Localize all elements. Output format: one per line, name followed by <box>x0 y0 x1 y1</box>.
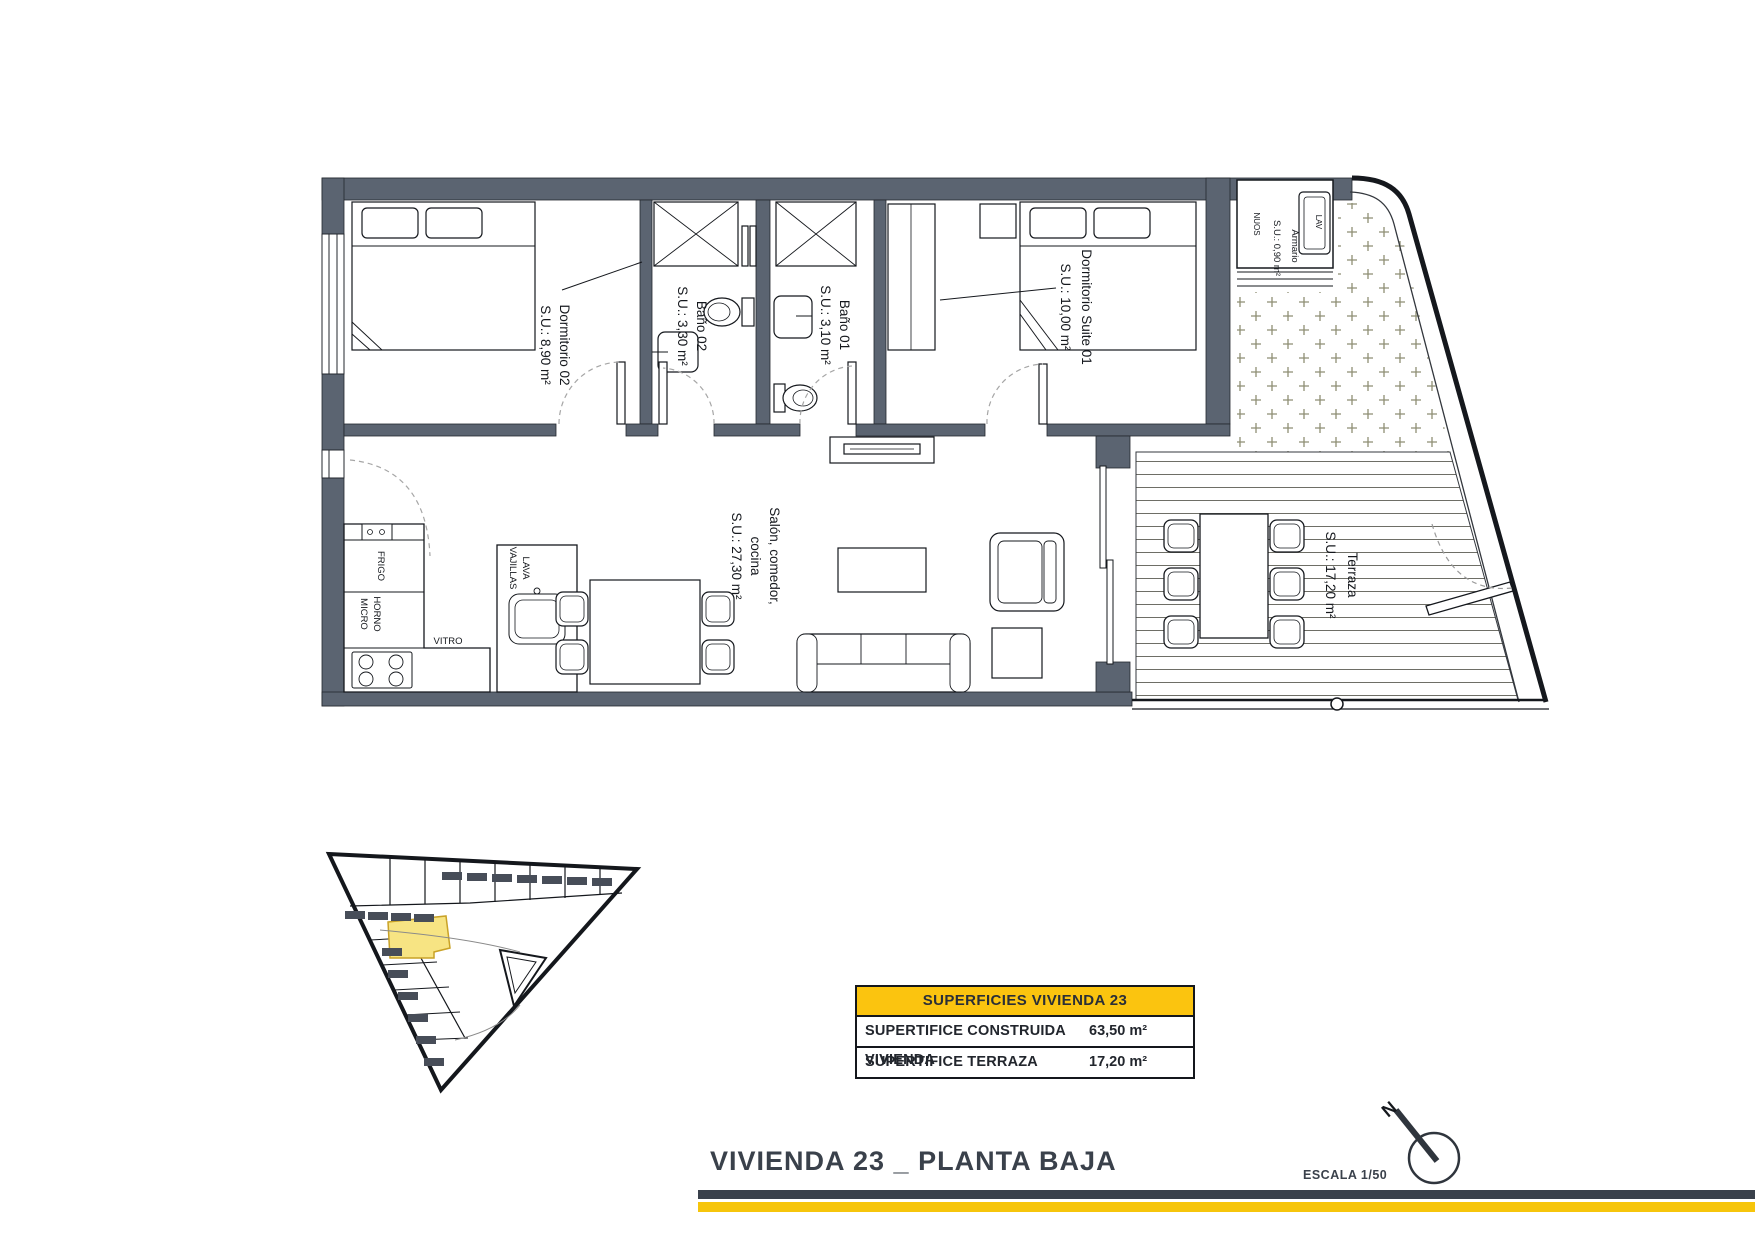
bano02-area: S.U.: 3,30 m² <box>675 286 690 366</box>
vitro-label: VITRO <box>433 636 462 647</box>
window-salon <box>322 450 344 478</box>
washer-label: LAV <box>1314 215 1323 230</box>
salon-name-line2: cocina <box>748 536 763 576</box>
micro-label: MICRO <box>358 598 369 630</box>
doors <box>350 362 1047 556</box>
frigo-label: FRIGO <box>375 551 386 581</box>
wardrobe <box>888 204 935 350</box>
pillow <box>426 208 482 238</box>
bano02-name: Baño 02 <box>694 301 709 351</box>
scale-label: ESCALA 1/50 <box>1303 1168 1387 1182</box>
label-leader <box>562 262 642 290</box>
armario-area-label: S.U.: 0,90 m² <box>1271 220 1282 276</box>
dormitorio02-area: S.U.: 8,90 m² <box>538 305 553 385</box>
north-label: N <box>1378 1097 1401 1121</box>
site-plan <box>329 854 637 1090</box>
vajillas-label: VAJILLAS <box>507 547 518 590</box>
side-table <box>992 628 1042 678</box>
armario-unit-label: NUOS <box>1252 212 1261 235</box>
row-value: 17,20 m² <box>1089 1048 1193 1077</box>
dining-set <box>556 580 734 684</box>
pillow <box>1094 208 1150 238</box>
horno-label: HORNO <box>371 596 382 631</box>
sink <box>774 296 812 338</box>
table-row: SUPERTIFICE CONSTRUIDA VIVIENDA 63,50 m² <box>857 1017 1193 1046</box>
terrace-drain <box>1331 698 1343 710</box>
bano01-area: S.U.: 3,10 m² <box>818 285 833 365</box>
terraza-area: S.U.: 17,20 m² <box>1323 531 1338 619</box>
title-bar-yellow <box>698 1202 1755 1212</box>
salon-area: S.U.: 27,30 m² <box>729 512 744 600</box>
suite01-name: Dormitorio Suite 01 <box>1079 249 1094 365</box>
pillow <box>362 208 418 238</box>
dormitorio02-name: Dormitorio 02 <box>557 304 572 385</box>
suite01-area: S.U.: 10,00 m² <box>1058 263 1073 351</box>
surface-summary-table: SUPERFICIES VIVIENDA 23 SUPERTIFICE CONS… <box>855 985 1195 1079</box>
row-label: SUPERTIFICE CONSTRUIDA VIVIENDA <box>857 1017 1089 1046</box>
terrace-table <box>1200 514 1268 638</box>
floor-plan-sheet: NUOS S.U.: 0,90 m² Armario LAV Dormitori… <box>0 0 1755 1249</box>
table-row: SUPERTIFICE TERRAZA 17,20 m² <box>857 1046 1193 1077</box>
terraza-name: Terraza <box>1345 552 1360 598</box>
title-bar-dark <box>698 1190 1755 1199</box>
toilet-tank <box>742 298 754 326</box>
row-value: 63,50 m² <box>1089 1017 1193 1046</box>
sofa <box>797 634 970 692</box>
table-header: SUPERFICIES VIVIENDA 23 <box>857 987 1193 1017</box>
electrical-box <box>362 524 392 540</box>
dormitorio02 <box>352 202 642 350</box>
row-label: SUPERTIFICE TERRAZA <box>857 1048 1089 1077</box>
lava-label: LAVA <box>520 557 531 581</box>
pillow <box>1030 208 1086 238</box>
north-arrow: N <box>1378 1097 1459 1183</box>
armario-room: NUOS S.U.: 0,90 m² Armario LAV <box>1237 180 1333 286</box>
terrace-dining-set <box>1164 514 1304 648</box>
dining-table <box>590 580 700 684</box>
armario-name-label: Armario <box>1289 229 1300 262</box>
bano01-name: Baño 01 <box>837 300 852 350</box>
sheet-title: VIVIENDA 23 _ PLANTA BAJA <box>710 1146 1117 1177</box>
suite01 <box>888 202 1196 350</box>
salon-name-line1: Salón, comedor, <box>767 507 782 605</box>
nightstand <box>980 204 1016 238</box>
living-room <box>797 437 1064 692</box>
terrace-sliding-door <box>1100 466 1113 664</box>
window-dormitorio02 <box>322 234 344 374</box>
coffee-table <box>838 548 926 592</box>
